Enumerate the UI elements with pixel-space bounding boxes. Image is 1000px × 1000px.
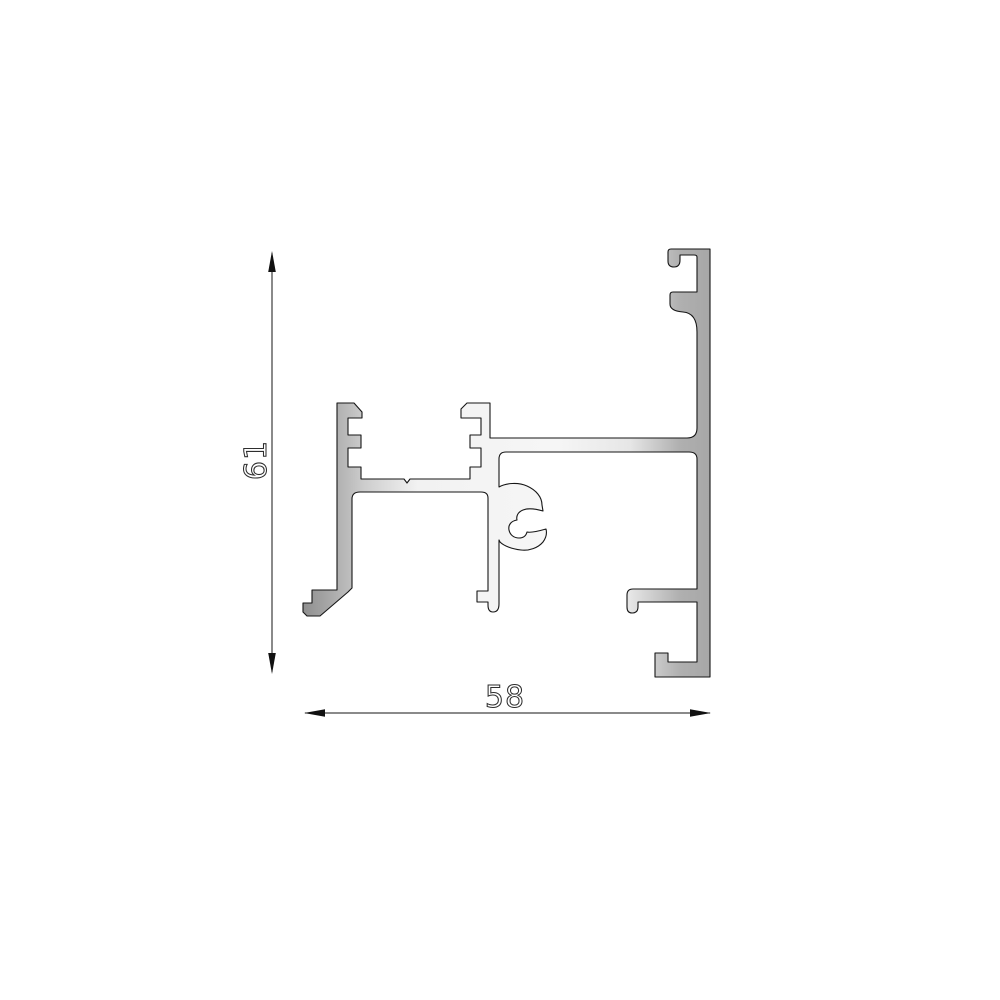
width-dim-arrow-left-icon bbox=[304, 709, 325, 717]
width-dim-arrow-right-icon bbox=[690, 709, 711, 717]
height-dimension-label: 61 bbox=[239, 440, 274, 480]
profile-cross-section-drawing: 61 58 bbox=[0, 0, 1000, 1000]
height-dim-arrow-up-icon bbox=[268, 251, 276, 272]
width-dimension: 58 bbox=[304, 680, 711, 717]
width-dimension-label: 58 bbox=[485, 680, 525, 715]
drawing-canvas: 61 58 bbox=[0, 0, 1000, 1000]
height-dim-arrow-down-icon bbox=[268, 653, 276, 674]
height-dimension: 61 bbox=[239, 251, 276, 674]
aluminium-profile-outline bbox=[303, 249, 710, 677]
